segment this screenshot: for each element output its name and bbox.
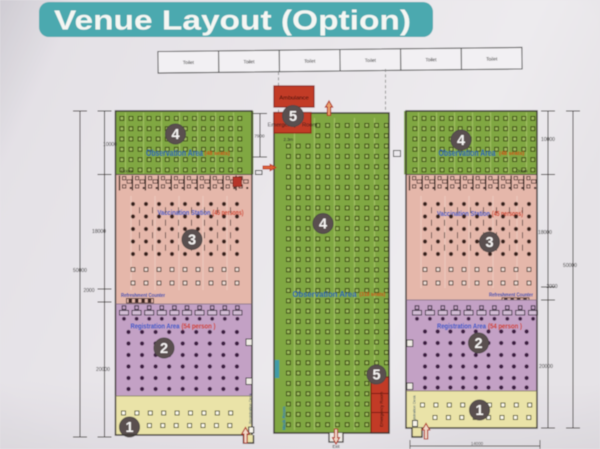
svg-text:1: 1: [475, 403, 483, 419]
svg-text:Emergency Room: Emergency Room: [379, 392, 384, 427]
svg-text:Toilet: Toilet: [425, 57, 437, 63]
svg-text:Observation Area: Observation Area: [439, 148, 497, 159]
svg-text:Exit: Exit: [333, 444, 341, 449]
svg-text:(318 seats): (318 seats): [360, 292, 386, 298]
svg-text:Ambulance: Ambulance: [279, 96, 309, 102]
svg-text:50000: 50000: [563, 263, 577, 269]
svg-text:4: 4: [457, 133, 465, 149]
svg-text:Observation Area: Observation Area: [293, 289, 357, 299]
svg-text:Toilet: Toilet: [486, 57, 498, 63]
svg-text:7900: 7900: [254, 134, 265, 139]
svg-text:Registration Area: Registration Area: [437, 322, 487, 331]
svg-text:20000: 20000: [539, 364, 553, 370]
svg-text:14000: 14000: [471, 441, 484, 446]
svg-text:Venue Layout (Option): Venue Layout (Option): [54, 5, 411, 36]
svg-text:10000: 10000: [103, 142, 117, 148]
svg-text:(48 seats): (48 seats): [205, 151, 231, 157]
svg-text:Toilet: Toilet: [183, 60, 195, 66]
svg-text:10000: 10000: [541, 137, 555, 143]
svg-text:2.3m: 2.3m: [284, 137, 294, 142]
svg-text:5: 5: [372, 368, 380, 384]
svg-text:2000: 2000: [546, 284, 557, 290]
svg-text:Registration Area: Registration Area: [131, 322, 181, 331]
svg-text:2: 2: [474, 336, 482, 352]
svg-text:Mask Room: Mask Room: [282, 406, 287, 430]
svg-text:3: 3: [188, 233, 196, 249]
svg-text:1: 1: [125, 420, 133, 436]
svg-text:Refreshment Counter: Refreshment Counter: [121, 293, 165, 299]
svg-text:20000: 20000: [96, 367, 110, 373]
svg-text:50000: 50000: [73, 268, 87, 274]
svg-text:(54 person ): (54 person ): [488, 324, 522, 331]
svg-text:Toilet: Toilet: [365, 58, 377, 64]
svg-text:18000: 18000: [538, 230, 552, 236]
svg-text:Toilet: Toilet: [304, 59, 316, 65]
svg-text:3: 3: [485, 235, 493, 251]
svg-text:4: 4: [319, 217, 327, 233]
svg-text:(48 seats): (48 seats): [499, 151, 525, 157]
svg-text:(54 person ): (54 person ): [182, 324, 216, 331]
svg-text:2000: 2000: [83, 288, 94, 294]
svg-text:Observation Area: Observation Area: [146, 148, 204, 159]
svg-text:Doors: Doors: [516, 169, 529, 174]
svg-text:Doors: Doors: [121, 169, 134, 174]
svg-text:2: 2: [160, 341, 168, 357]
svg-text:Toilet: Toilet: [243, 59, 255, 65]
svg-text:4: 4: [171, 127, 179, 143]
svg-text:18000: 18000: [92, 229, 106, 235]
svg-text:Room: Room: [302, 123, 318, 129]
svg-text:5: 5: [289, 109, 297, 125]
